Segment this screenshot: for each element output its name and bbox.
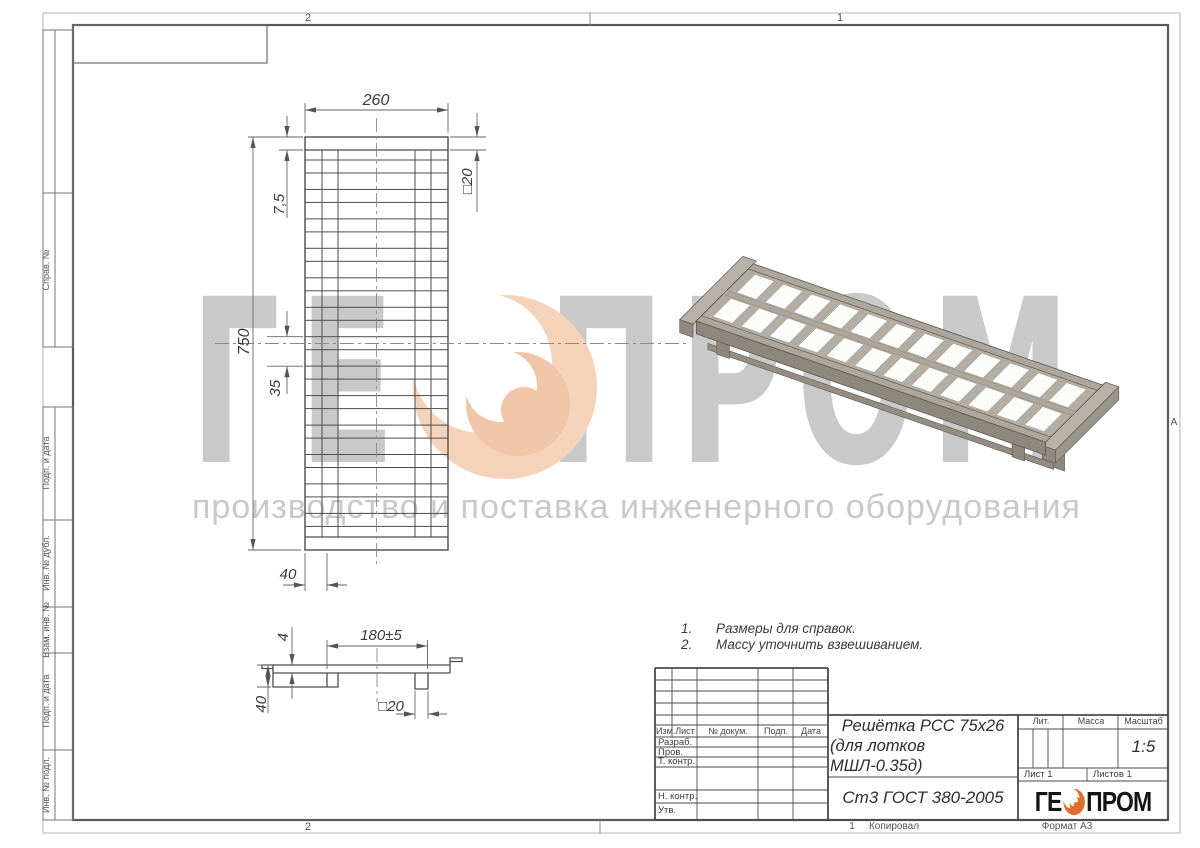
dim-pitch: 35 bbox=[268, 338, 285, 438]
logo-text-left: ГЕ bbox=[1035, 786, 1062, 818]
company-logo: ГЕ ПРОМ bbox=[1020, 786, 1166, 818]
zone-marker-top-right: 1 bbox=[832, 12, 848, 24]
tb-row-utv: Утв. bbox=[658, 806, 676, 816]
dim-tube-side: □20 bbox=[361, 699, 421, 716]
tb-massa-label: Масса bbox=[1064, 717, 1118, 727]
part-title-line1: Решётка РСС 75х26 bbox=[842, 716, 1005, 736]
tb-row-tkontr: Т. контр. bbox=[658, 757, 695, 767]
dim-height: 40 bbox=[254, 654, 271, 754]
tb-sheet-no: Лист 1 bbox=[1024, 770, 1053, 780]
tb-row-nkontr: Н. контр. bbox=[658, 792, 697, 802]
scale-value: 1:5 bbox=[1119, 738, 1168, 757]
tb-col-doc: № докум. bbox=[698, 727, 758, 737]
material-spec: Ст3 ГОСТ 380-2005 bbox=[830, 789, 1016, 808]
dim-side-offset: 40 bbox=[268, 567, 308, 584]
note-text-2: Массу уточнить взвешиванием. bbox=[716, 638, 923, 653]
dim-tube-top: □20 bbox=[460, 131, 477, 231]
margin-label-inv-podl: Инв. № подл. bbox=[42, 735, 56, 835]
tb-masshtab-label: Масштаб bbox=[1119, 717, 1168, 727]
format-label: Формат А3 bbox=[1032, 821, 1102, 832]
dim-span: 180±5 bbox=[341, 628, 421, 645]
logo-text-right: ПРОМ bbox=[1086, 786, 1151, 818]
drawing-sheet: производство и поставка инженерного обор… bbox=[0, 0, 1200, 848]
tb-col-list: Лист bbox=[673, 727, 697, 737]
row-marker: А bbox=[1167, 417, 1181, 428]
dim-length: 750 bbox=[236, 292, 254, 392]
dim-plate: 4 bbox=[276, 587, 293, 687]
copy-label: Копировал bbox=[862, 821, 926, 832]
note-number-2: 2. bbox=[681, 638, 705, 653]
tb-col-podp: Подп. bbox=[759, 727, 793, 737]
margin-label-podp-data-1: Подп. и дата bbox=[42, 413, 56, 513]
note-number-1: 1. bbox=[681, 622, 705, 637]
margin-label-sprav: Справ. № bbox=[42, 220, 56, 320]
logo-swirl-icon bbox=[1062, 788, 1085, 816]
part-title: Решётка РСС 75х26 (для лотков МШЛ-0.35д) bbox=[830, 716, 1016, 776]
note-text-1: Размеры для справок. bbox=[716, 622, 856, 637]
tb-col-izm: Изм. bbox=[656, 727, 673, 737]
tb-sheets-total: Листов 1 bbox=[1093, 770, 1132, 780]
zone-marker-top-left: 2 bbox=[300, 12, 316, 24]
zone-marker-bottom-right: 1 bbox=[845, 821, 859, 832]
dim-width: 260 bbox=[346, 92, 406, 110]
dim-end-bar: 7,5 bbox=[272, 154, 289, 254]
tb-lit-label: Лит. bbox=[1019, 717, 1063, 727]
tb-col-date: Дата bbox=[794, 727, 828, 737]
part-title-line2: (для лотков МШЛ-0.35д) bbox=[830, 736, 1016, 776]
zone-marker-bottom-left: 2 bbox=[300, 821, 316, 833]
